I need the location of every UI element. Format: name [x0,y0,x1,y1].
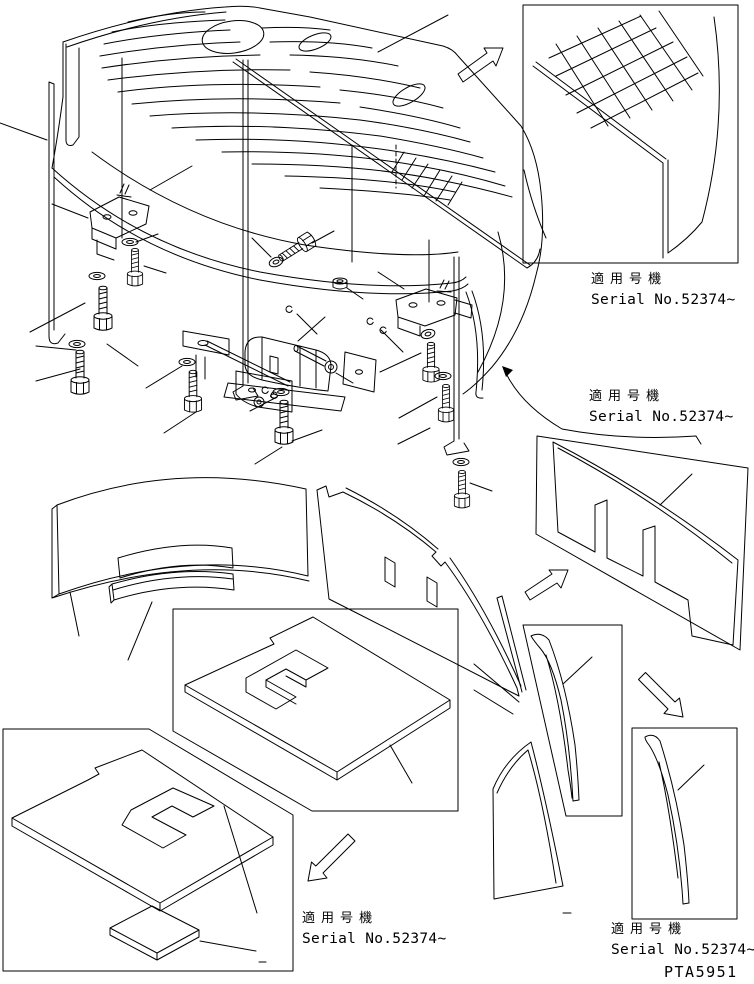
serial-note-mid-right: 適用号機 Serial No.52374~ [589,389,733,426]
side-seal-strip [531,634,579,801]
arrow-to-hood-corner-inset [458,48,503,82]
engine-hood [52,6,543,398]
insulation-panels [52,478,563,899]
hood-left-pillar [66,44,79,145]
parts-diagram-canvas [0,0,754,984]
nut [333,278,347,289]
serial-note-leader-arrowhead [502,366,513,377]
serial-note-en: Serial No.52374~ [611,941,754,959]
inset-box-floor-panel-center [173,609,458,811]
curved-strip-narrow [109,572,234,603]
inset-border [632,728,737,919]
notched-panel-middle [317,486,521,696]
serial-note-bottom-center: 適用号機 Serial No.52374~ [302,911,446,948]
floor-panel-z-cutout [185,617,450,780]
curved-panel-large [52,478,309,598]
hood-slot-2 [390,80,429,111]
inset-border [3,729,293,971]
serial-note-top-right: 適用号機 Serial No.52374~ [591,272,735,309]
serial-note-en: Serial No.52374~ [302,930,446,948]
inset-box-floor-panel-left [3,729,293,971]
drawing-code: PTA5951 [664,963,738,981]
hood-lock-assembly [183,331,376,412]
inset-border [523,5,738,263]
leader-lines [0,15,704,962]
direction-arrows [308,48,683,881]
inset-box-hood-corner [523,5,738,263]
mesh-grid [549,11,703,128]
hood-right-seal [466,291,484,398]
hood-top-hatching [100,12,512,200]
left-seal-strip [49,82,65,344]
serial-note-jp: 適用号機 [589,389,733,405]
bolt [71,350,89,394]
serial-note-jp: 適用号機 [591,272,735,288]
hood-crease [233,59,530,268]
arrow-to-rear-panel-inset [525,570,568,600]
arrow-to-strip-inset [639,673,684,718]
seal-retainer-left [233,60,277,400]
serial-note-en: Serial No.52374~ [591,291,735,309]
rear-curved-panel [553,442,738,645]
serial-note-en: Serial No.52374~ [589,408,733,426]
hood-corner-detail [524,17,719,258]
fasteners [69,231,470,508]
washer [69,340,85,347]
floor-panel-c-cutout [12,750,273,911]
inset-box-rear-panel [536,436,748,650]
insulation-pad [110,906,199,960]
side-seal-strip-long [645,735,689,904]
hood-oval-hole [200,17,266,57]
hood-hinge-left [90,184,149,260]
parts-diagram-page: 適用号機 Serial No.52374~ 適用号機 Serial No.523… [0,0,754,984]
serial-note-bottom-right: 適用号機 Serial No.52374~ [611,922,754,959]
inset-box-side-strip-lower [632,728,737,919]
arrow-to-floor-panel-inset [308,834,355,881]
serial-note-jp: 適用号機 [611,922,754,938]
hood-bottom-rim [52,152,468,294]
curved-fin-panel [493,742,563,899]
serial-note-jp: 適用号機 [302,911,446,927]
bolt-angled [275,231,317,266]
